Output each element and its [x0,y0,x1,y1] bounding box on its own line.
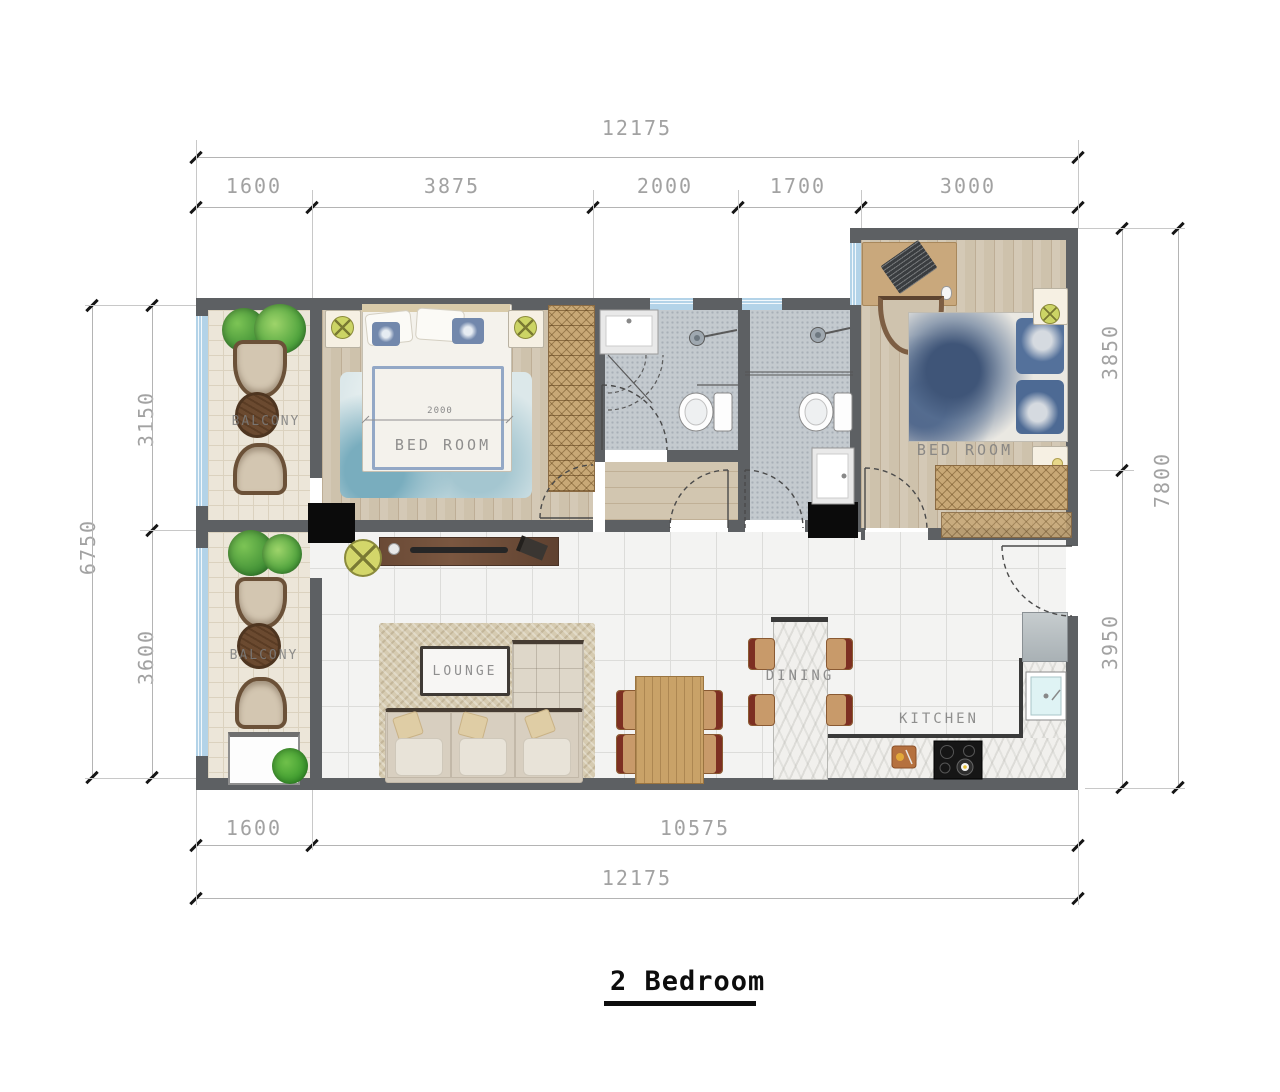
bedroom1-wardrobe [548,305,595,492]
balcony-top-label: BALCONY [216,414,316,429]
kitchen-label: KITCHEN [896,711,982,727]
dining-chair-1 [748,638,775,670]
bedroom2-pillow-bottom [1016,380,1064,434]
window-balcony-bottom [196,548,208,756]
floor-plan-canvas: BED ROOM 2000 BED ROOM BALCONY BALCONY L… [0,0,1280,1092]
bedroom1-lamp-right-icon [514,316,537,339]
dining-chair-4 [826,694,853,726]
bedroom2-pillow-top [1016,318,1064,374]
plan-title: 2 Bedroom [604,966,756,1006]
wall-corridor-stub [728,520,745,532]
dim-left-seg-2: 3600 [134,617,158,697]
bed-width-dimension: 2000 [418,406,462,416]
wall-corridor-bottom [605,520,670,532]
balcony-bottom-palm-icon [262,534,302,574]
console-cup-icon [388,543,400,555]
column-left [308,503,355,543]
fridge [1022,612,1068,662]
dim-left-overall-line [92,305,93,778]
dim-top-segment-line [196,207,1078,208]
wall-balcony-bottom-divider [310,578,322,778]
kitchen-counter-bottom [826,738,1066,778]
dim-right-segment-line [1122,228,1123,788]
dim-top-overall: 12175 [577,116,697,140]
dim-top-seg-4: 1700 [758,174,838,198]
planter-icon [344,539,382,577]
dining-island [773,620,828,780]
corridor-floor [605,462,738,520]
wall-bath1-bath2 [738,310,750,520]
dining-label: DINING [760,668,840,684]
counter-edge-horizontal [826,734,1020,738]
wall-bedroom1-bottom [355,520,593,532]
sofa-cushion-3 [523,738,571,776]
dim-top-seg-5: 3000 [928,174,1008,198]
dim-right-overall: 7800 [1150,440,1174,520]
bedroom2-label: BED ROOM [905,441,1025,459]
window-balcony-top [196,316,208,506]
sofa-cushion-2 [459,738,507,776]
dim-right-seg-1: 3850 [1098,312,1122,392]
dim-top-seg-2: 3875 [412,174,492,198]
bedroom1-duvet-trim [372,366,504,470]
window-bedroom2 [850,243,861,305]
wall-top-bedroom2 [850,228,1078,240]
dim-bottom-seg-1: 1600 [214,816,294,840]
dim-top-seg-3: 2000 [625,174,705,198]
bedroom1-pillow-blue-right [452,318,484,344]
sofa-cushion-1 [395,738,443,776]
balcony-bottom-chair-2 [235,677,287,729]
lounge-label: LOUNGE [433,664,498,679]
dim-bottom-overall: 12175 [577,866,697,890]
bedroom2-wardrobe [935,465,1068,510]
wall-bedroom2-door-stub [861,528,865,540]
window-bathroom2 [742,298,782,310]
bedroom1-lamp-left-icon [331,316,354,339]
window-bathroom1 [650,298,693,310]
dining-island-edge [771,617,828,622]
soundbar-icon [410,547,508,553]
dim-bottom-seg-2: 10575 [640,816,750,840]
bedroom2-wardrobe-bench [941,512,1072,538]
dim-left-segment-line [152,305,153,778]
balcony-bottom-label: BALCONY [214,648,314,663]
dining-chair-2 [748,694,775,726]
wall-bath1-bottom [667,450,738,462]
wood-dining-table [635,676,704,784]
wall-balcony-top-divider [310,310,322,478]
counter-edge-vertical [1019,658,1023,738]
dim-left-overall: 6750 [76,507,100,587]
dim-right-overall-line [1178,228,1179,788]
dining-chair-3 [826,638,853,670]
column-right [808,502,858,538]
bathroom2-floor [750,310,850,520]
dim-bottom-segment-line [196,845,1078,846]
lounge-coffee-table: LOUNGE [420,646,510,696]
dim-right-seg-2: 3950 [1098,602,1122,682]
bedroom2-lamp-icon [1040,304,1060,324]
dim-top-seg-1: 1600 [214,174,294,198]
bathroom1-floor [605,310,738,450]
bedroom1-label: BED ROOM [383,436,503,454]
balcony-bottom-bush-icon [272,748,308,784]
dim-top-overall-line [196,157,1078,158]
balcony-top-chair-2 [233,443,287,495]
dim-bottom-overall-line [196,898,1078,899]
dim-left-seg-1: 3150 [134,379,158,459]
bedroom1-pillow-blue-left [372,322,400,346]
